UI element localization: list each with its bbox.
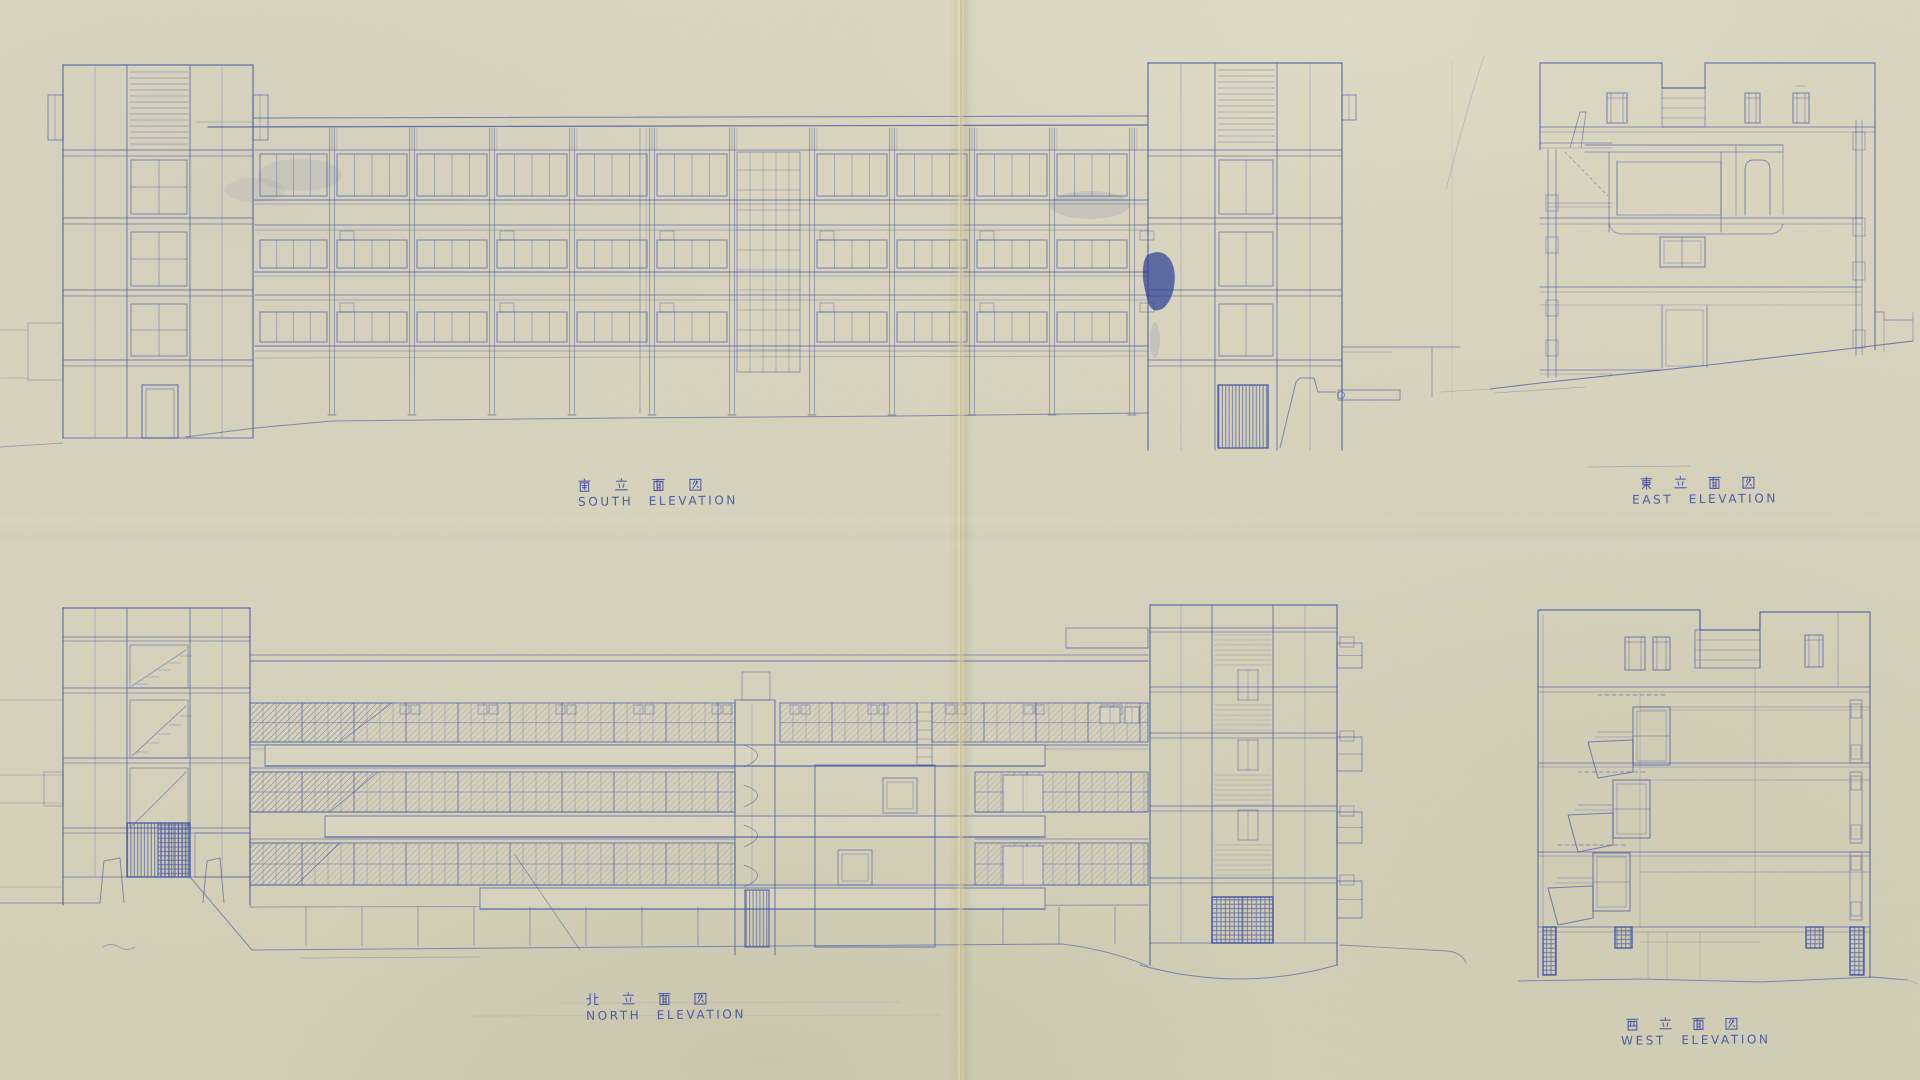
west-elevation-kanji-title: [1626, 1014, 1751, 1032]
south-elevation-kanji-title: [578, 475, 718, 493]
north-elevation-label: NORTH ELEVATION: [586, 989, 746, 1023]
east-elevation-label: EAST ELEVATION: [1640, 473, 1778, 506]
west-elevation-label: WEST ELEVATION: [1626, 1014, 1771, 1048]
south-elevation-en-title: SOUTH ELEVATION: [578, 493, 738, 509]
blueprint-sheet: SOUTH ELEVATION EAST ELEVATION NORTH ELE…: [0, 0, 1920, 1080]
north-elevation-kanji-title: [586, 989, 726, 1007]
east-elevation-kanji-title: [1640, 473, 1770, 491]
west-elevation-en-title: WEST ELEVATION: [1621, 1032, 1771, 1048]
east-elevation-en-title: EAST ELEVATION: [1632, 491, 1778, 507]
south-elevation-label: SOUTH ELEVATION: [578, 475, 738, 509]
elevations-drawing: [0, 0, 1920, 1080]
north-elevation-en-title: NORTH ELEVATION: [586, 1007, 746, 1023]
